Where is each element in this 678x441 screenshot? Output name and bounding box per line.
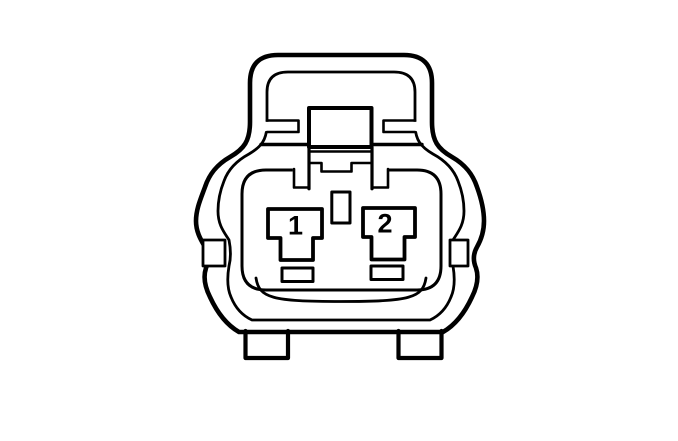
side-tab-right bbox=[450, 240, 468, 266]
mounting-leg-left bbox=[246, 331, 289, 358]
diagram-canvas: 1 2 bbox=[0, 0, 678, 441]
rib-slot-patch-right bbox=[413, 122, 417, 131]
center-key-slot bbox=[332, 192, 350, 223]
index-rib-right bbox=[384, 121, 416, 133]
rib-slot-patch-left bbox=[265, 122, 269, 131]
connector-diagram: 1 2 bbox=[0, 0, 678, 441]
lock-tab bbox=[309, 108, 372, 147]
terminal-2-port bbox=[371, 266, 403, 280]
terminal-2-label: 2 bbox=[377, 209, 392, 239]
mounting-leg-right bbox=[399, 331, 442, 358]
terminal-1-label: 1 bbox=[288, 211, 303, 241]
side-tab-left bbox=[203, 240, 225, 266]
terminal-1-port bbox=[282, 268, 313, 282]
index-rib-left bbox=[267, 121, 299, 133]
